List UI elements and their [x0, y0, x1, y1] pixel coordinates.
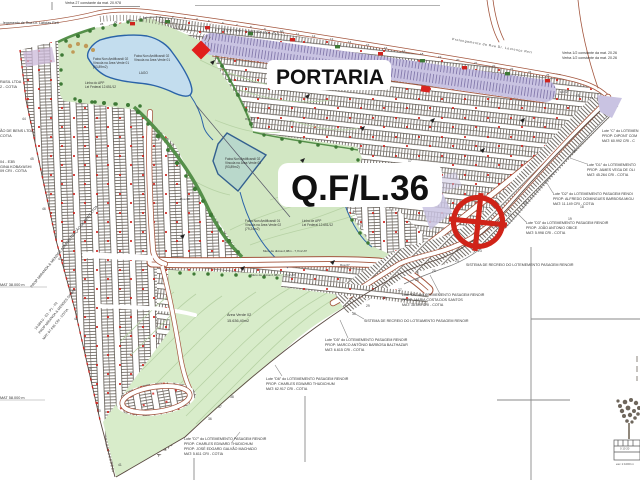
svg-text:15.636,40m2: 15.636,40m2: [227, 319, 249, 323]
svg-text:10/12: 10/12: [560, 90, 568, 94]
svg-text:MAT: 38.600 CRI - COTIA: MAT: 38.600 CRI - COTIA: [402, 303, 444, 307]
svg-text:Rua 06: Rua 06: [245, 117, 255, 121]
svg-text:11: 11: [296, 32, 299, 36]
svg-text:Lote "D4" do LOTEMEMENTO PASAG: Lote "D4" do LOTEMEMENTO PASAGEM RENOIR: [402, 293, 485, 297]
svg-text:Q.F/L.36: Q.F/L.36: [291, 169, 429, 208]
svg-text:Lote "D6" do LOTEMEMENTO PASAG: Lote "D6" do LOTEMEMENTO PASAGEM RENOIR: [266, 377, 349, 381]
svg-text:30: 30: [128, 18, 132, 22]
svg-text:20: 20: [456, 58, 460, 62]
svg-text:17: 17: [408, 159, 412, 163]
svg-text:Muro de divisa 2,08m - 7,7m2 A: Muro de divisa 2,08m - 7,7m2 AT: [263, 249, 307, 253]
svg-text:31: 31: [143, 16, 147, 20]
svg-text:41: 41: [118, 463, 122, 467]
svg-text:18: 18: [420, 52, 424, 56]
svg-text:24: 24: [455, 259, 459, 263]
svg-text:PROP: MARIA COSTA DOS SANTOS: PROP: MARIA COSTA DOS SANTOS: [402, 298, 463, 302]
svg-text:14: 14: [348, 40, 352, 44]
svg-text:48: 48: [74, 317, 78, 321]
svg-text:(93,89m2): (93,89m2): [225, 165, 240, 169]
svg-text:RASIL LTDA: RASIL LTDA: [0, 80, 22, 84]
svg-text:MAT: 45.264 CRI - COTIA: MAT: 45.264 CRI - COTIA: [587, 173, 629, 177]
svg-text:38: 38: [230, 395, 234, 399]
svg-text:23: 23: [478, 249, 482, 253]
svg-text:15: 15: [366, 43, 370, 47]
svg-text:PORTARIA: PORTARIA: [276, 66, 384, 89]
svg-text:27: 27: [398, 288, 402, 292]
svg-text:23: 23: [510, 67, 514, 71]
svg-text:COTIA: COTIA: [0, 134, 12, 138]
svg-text:MAT: 5.998 CRI - COTIA: MAT: 5.998 CRI - COTIA: [526, 231, 566, 235]
svg-text:22: 22: [494, 225, 498, 229]
svg-text:MAT: 11.149 CRI - COTIA: MAT: 11.149 CRI - COTIA: [553, 202, 595, 206]
svg-text:21: 21: [474, 61, 478, 65]
svg-text:09 CRI - COTIA: 09 CRI - COTIA: [0, 169, 27, 173]
svg-text:16: 16: [384, 46, 388, 50]
svg-text:Lote "D5" do LOTEMEMENTO PASAG: Lote "D5" do LOTEMEMENTO PASAGEM RENOIR: [325, 338, 408, 342]
svg-text:47: 47: [58, 257, 62, 261]
svg-text:MAT: 5.611 CRI - COTIA: MAT: 5.611 CRI - COTIA: [184, 452, 224, 456]
svg-text:SISTEMA DE RECREIO DO LOTEAMEN: SISTEMA DE RECREIO DO LOTEAMENTO PASAGEM…: [364, 319, 469, 323]
svg-text:2 - COTIA: 2 - COTIA: [0, 85, 18, 89]
svg-text:13: 13: [330, 37, 334, 41]
svg-text:Lote "D7" do LOTEMEMENTO PASAG: Lote "D7" do LOTEMEMENTO PASAGEM RENOIR: [184, 437, 267, 441]
svg-text:Lote "D1" do LOTEMEMENTO: Lote "D1" do LOTEMEMENTO: [587, 163, 636, 167]
svg-text:PROP: JOSÉ EDGARD GALVÃO MACHA: PROP: JOSÉ EDGARD GALVÃO MACHADO: [184, 446, 257, 451]
svg-text:MAT: 60.992 CRI - C: MAT: 60.992 CRI - C: [602, 139, 635, 143]
svg-text:25: 25: [546, 73, 550, 77]
svg-text:PROP: ALFREDO DOMINGUES BARBOS: PROP: ALFREDO DOMINGUES BARBOSA MIGU: [553, 197, 634, 201]
svg-text:20: 20: [523, 201, 527, 205]
svg-text:24: 24: [528, 70, 532, 74]
svg-text:...legamento de Rua Dr. Latici: ...legamento de Rua Dr. Laticias Reti: [0, 21, 59, 25]
svg-text:MAT: 62.917 CRI - COTIA: MAT: 62.917 CRI - COTIA: [266, 387, 308, 391]
svg-text:04 - E3B: 04 - E3B: [0, 160, 15, 164]
svg-text:Verba 27 constante da mat. 20.: Verba 27 constante da mat. 20.978: [65, 1, 121, 5]
svg-text:LAGO: LAGO: [139, 71, 148, 75]
svg-text:44: 44: [22, 117, 26, 121]
svg-text:ÃO DE BENS LTDA: ÃO DE BENS LTDA: [0, 128, 34, 133]
svg-text:28: 28: [100, 22, 104, 26]
svg-text:45: 45: [30, 157, 34, 161]
svg-text:Rua 08: Rua 08: [180, 197, 190, 201]
svg-text:Vincula na Área Verde 01: Vincula na Área Verde 01: [134, 58, 170, 62]
svg-text:PROP: DIPONT COM: PROP: DIPONT COM: [602, 134, 637, 138]
svg-text:21: 21: [508, 213, 512, 217]
svg-text:13: 13: [576, 93, 580, 97]
svg-text:22: 22: [492, 64, 496, 68]
svg-text:(79,24m2): (79,24m2): [245, 227, 260, 231]
svg-text:Muro de divisa 2,08m - 7,7m2 A: Muro de divisa 2,08m - 7,7m2 AT: [251, 273, 295, 277]
svg-text:Verba 1/2 constante da mat. 20: Verba 1/2 constante da mat. 20.26: [562, 56, 617, 60]
svg-text:PROP: CHARLES EDWARD THUDICHUM: PROP: CHARLES EDWARD THUDICHUM: [184, 442, 253, 446]
svg-text:PROP: MARCO ANTÔNIO BARBOSA BA: PROP: MARCO ANTÔNIO BARBOSA BALTHAZAR: [325, 342, 408, 347]
svg-text:46: 46: [42, 207, 46, 211]
svg-text:Verba 1/2 constante da mat. 20: Verba 1/2 constante da mat. 20.26: [562, 51, 617, 55]
svg-text:17: 17: [402, 49, 406, 53]
svg-text:PROP: JOÃO ANTONIO OBICE: PROP: JOÃO ANTONIO OBICE: [526, 225, 578, 230]
svg-text:(93,89m2): (93,89m2): [93, 65, 108, 69]
svg-text:MAT 58.000 m: MAT 58.000 m: [0, 396, 25, 400]
svg-text:40: 40: [97, 409, 101, 413]
svg-text:10: 10: [280, 29, 284, 33]
svg-text:Lote "D2" do LOTEMEMENTO PASAG: Lote "D2" do LOTEMEMENTO PASAGEM RENOI: [553, 192, 633, 196]
svg-text:29: 29: [366, 304, 370, 308]
svg-text:26: 26: [415, 278, 419, 282]
svg-text:PROP: JAMES VEGA DE OLI: PROP: JAMES VEGA DE OLI: [587, 168, 635, 172]
svg-text:19: 19: [438, 55, 442, 59]
svg-text:PROP: CHARLES EDWARD THUDICHUM: PROP: CHARLES EDWARD THUDICHUM: [266, 382, 335, 386]
svg-text:12: 12: [312, 34, 316, 38]
svg-text:Lei Federal 12.651/12: Lei Federal 12.651/12: [302, 223, 333, 227]
svg-text:Área Verde 02: Área Verde 02: [227, 313, 251, 317]
svg-text:29: 29: [114, 20, 118, 24]
svg-text:25: 25: [432, 269, 436, 273]
svg-text:Lei Federal 12.651/12: Lei Federal 12.651/12: [85, 85, 116, 89]
svg-text:28: 28: [382, 296, 386, 300]
svg-text:16: 16: [572, 149, 576, 153]
svg-text:Lote "D3" do LOTEMEMENTO PASAG: Lote "D3" do LOTEMEMENTO PASAGEM RENOIR: [526, 221, 609, 225]
svg-text:49: 49: [88, 367, 92, 371]
svg-text:MAT: 6.615 CRI - COTIA: MAT: 6.615 CRI - COTIA: [325, 348, 365, 352]
svg-text:MAT 38.000 m: MAT 38.000 m: [0, 283, 25, 287]
svg-text:0 10 20: 0 10 20: [620, 447, 630, 451]
svg-text:Rua 07: Rua 07: [340, 263, 350, 267]
svg-text:esc 1:1000 m: esc 1:1000 m: [616, 462, 635, 466]
svg-text:14: 14: [590, 96, 594, 100]
svg-text:Lote "C" do LOTEMEN: Lote "C" do LOTEMEN: [602, 129, 639, 133]
svg-text:37: 37: [218, 405, 222, 409]
svg-text:36: 36: [208, 417, 212, 421]
svg-text:SISTEMA DE RECREIO DO LOTEMEME: SISTEMA DE RECREIO DO LOTEMEMENTO PASAGE…: [466, 263, 574, 267]
